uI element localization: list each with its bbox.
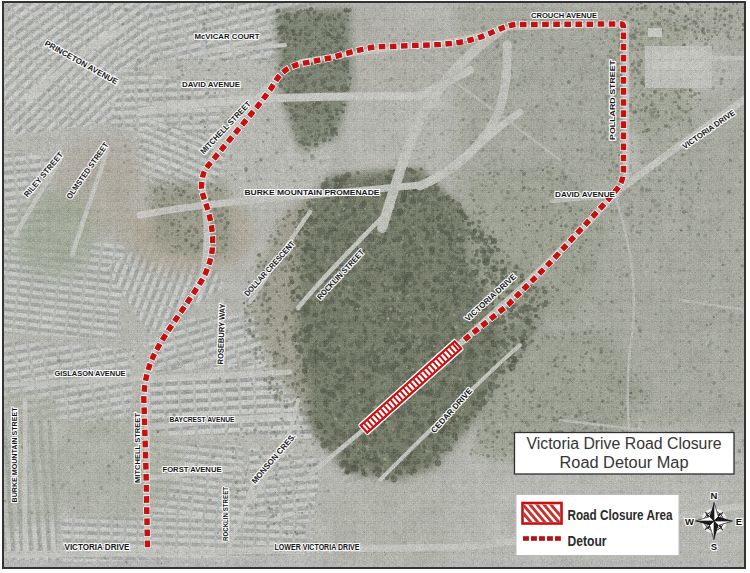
svg-text:DAVID AVENUE: DAVID AVENUE bbox=[182, 80, 241, 89]
svg-text:N: N bbox=[711, 490, 718, 501]
svg-text:W: W bbox=[685, 516, 694, 527]
svg-text:ROCKLIN STREET: ROCKLIN STREET bbox=[221, 487, 230, 541]
svg-text:LOWER VICTORIA DRIVE: LOWER VICTORIA DRIVE bbox=[275, 542, 360, 552]
svg-text:Victoria Drive Road Closure: Victoria Drive Road Closure bbox=[527, 435, 722, 452]
svg-text:GISLASON AVENUE: GISLASON AVENUE bbox=[55, 369, 127, 378]
svg-text:BURKE MOUNTAIN STREET: BURKE MOUNTAIN STREET bbox=[10, 407, 19, 502]
svg-text:CROUCH AVENUE: CROUCH AVENUE bbox=[531, 11, 598, 20]
svg-text:McVICAR COURT: McVICAR COURT bbox=[195, 32, 260, 41]
svg-text:Detour: Detour bbox=[568, 532, 607, 549]
svg-text:Road Closure Area: Road Closure Area bbox=[568, 506, 674, 523]
svg-text:BAYCREST AVENUE: BAYCREST AVENUE bbox=[170, 415, 236, 424]
svg-text:E: E bbox=[736, 516, 742, 527]
svg-text:BURKE MOUNTAIN PROMENADE: BURKE MOUNTAIN PROMENADE bbox=[245, 188, 381, 197]
svg-text:S: S bbox=[711, 541, 717, 552]
svg-text:POLLARD STREET: POLLARD STREET bbox=[608, 60, 617, 140]
svg-text:Road Detour Map: Road Detour Map bbox=[560, 454, 689, 471]
svg-text:FORST AVENUE: FORST AVENUE bbox=[163, 465, 223, 474]
svg-text:DAVID AVENUE: DAVID AVENUE bbox=[555, 190, 616, 199]
svg-text:VICTORIA DRIVE: VICTORIA DRIVE bbox=[65, 542, 130, 552]
svg-text:MITCHELL STREET: MITCHELL STREET bbox=[133, 413, 142, 483]
